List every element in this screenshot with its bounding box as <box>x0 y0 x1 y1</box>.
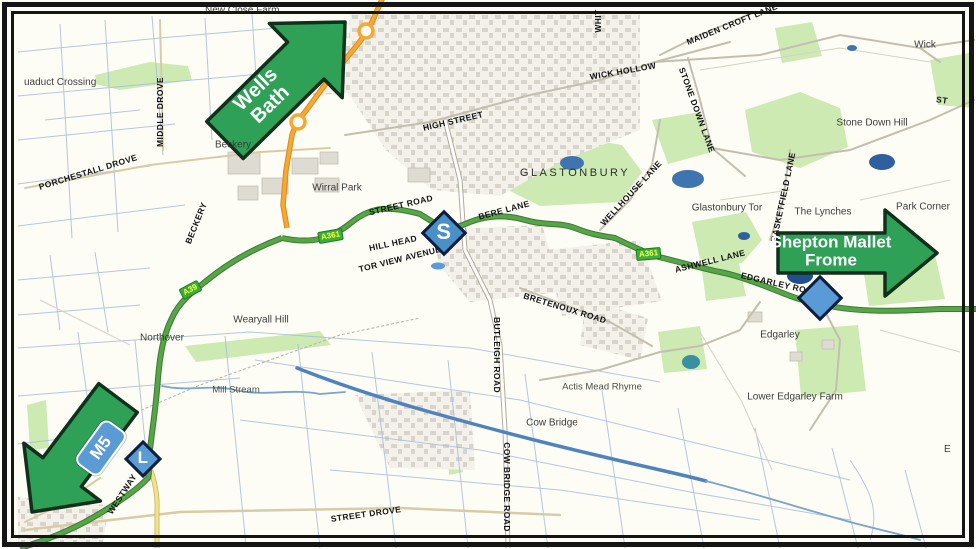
map-label-butleigh-road: BUTLEIGH ROAD <box>492 317 502 393</box>
map-label-cow-bridge-road: COW BRIDGE ROAD <box>502 442 512 532</box>
map-label-st-partial: ST <box>936 94 949 106</box>
map-label-whit-partial: WHIT <box>593 9 603 32</box>
marker-s-letter: S <box>436 219 451 245</box>
map-label-park-corner: Park Corner <box>896 202 950 213</box>
shepton-line: Shepton Mallet <box>771 234 892 252</box>
map-label-actis-mead-rhyme: Actis Mead Rhyme <box>562 382 642 393</box>
map-label-middle-drove: MIDDLE DROVE <box>155 77 165 147</box>
map-label-aquaduct-crossing: uaduct Crossing <box>24 77 96 88</box>
roundabout <box>359 24 373 38</box>
map-label-wearyall-hill: Wearyall Hill <box>233 315 288 326</box>
map-label-new-close-farm: New Close Farm <box>205 5 279 16</box>
map-canvas: New Close Farm uaduct Crossing MIDDLE DR… <box>0 0 976 549</box>
map-label-cow-bridge: Cow Bridge <box>526 418 578 429</box>
road-badge-a361-east: A361 <box>636 247 662 261</box>
map-label-stone-down-hill: Stone Down Hill <box>836 118 907 129</box>
map-label-wirral-park: Wirral Park <box>312 183 361 194</box>
shepton-frome-arrow-label: Shepton Mallet Frome <box>771 234 892 269</box>
map-label-northover: Northover <box>140 333 184 344</box>
roundabout <box>291 115 305 129</box>
map-label-glastonbury-tor: Glastonbury Tor <box>692 203 762 214</box>
frome-line: Frome <box>771 251 892 269</box>
marker-l-letter: L <box>138 448 148 468</box>
map-label-the-lynches: The Lynches <box>795 207 852 218</box>
map-label-mill-stream: Mill Stream <box>212 385 260 396</box>
map-label-beckery-town: Beckery <box>215 140 251 151</box>
map-label-e-partial: E <box>944 444 951 455</box>
map-label-edgarley: Edgarley <box>760 330 799 341</box>
map-label-lower-edgarley-farm: Lower Edgarley Farm <box>747 392 843 403</box>
map-screenshot: New Close Farm uaduct Crossing MIDDLE DR… <box>0 0 976 549</box>
map-label-glastonbury: GLASTONBURY <box>520 167 630 179</box>
map-label-wick: Wick <box>914 40 936 51</box>
